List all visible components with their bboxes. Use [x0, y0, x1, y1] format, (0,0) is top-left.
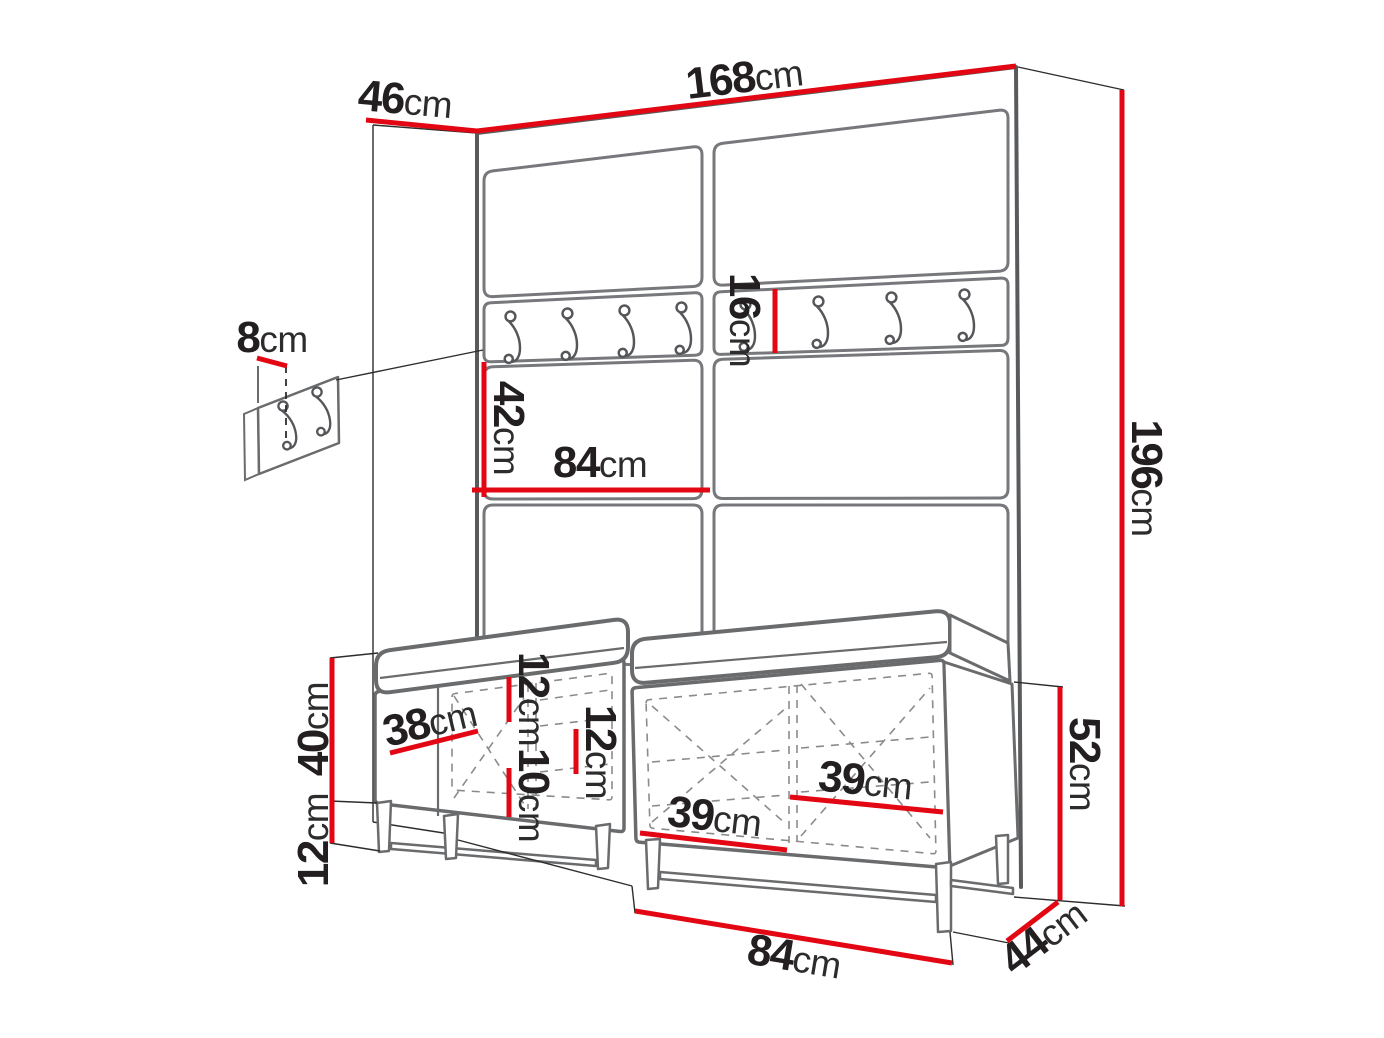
dimension-diagram: 46cm 168cm 196cm 8cm 42cm 84cm 16cm 40cm [0, 0, 1384, 1038]
dim-leg-height: 12cm [289, 793, 338, 887]
mini-hook-panel [244, 350, 483, 480]
svg-text:8cm: 8cm [236, 313, 307, 362]
hook-rail-left [484, 293, 702, 362]
svg-text:52cm: 52cm [1060, 717, 1109, 811]
svg-text:16cm: 16cm [720, 273, 769, 367]
bench-leg [596, 824, 610, 869]
bench-leg [444, 814, 458, 859]
svg-text:42cm: 42cm [484, 381, 533, 475]
mini-panel-board [258, 377, 339, 474]
svg-text:196cm: 196cm [1122, 419, 1171, 536]
svg-text:84cm: 84cm [553, 438, 647, 487]
dim-shelf-gap-bottom: 10cm [509, 748, 558, 842]
dim-shelf-gap-top: 12cm [509, 652, 558, 746]
bench-leg [646, 839, 660, 889]
svg-text:46cm: 46cm [356, 71, 454, 128]
upholstered-pads-right [714, 110, 1008, 681]
pointer-line [336, 350, 483, 380]
svg-text:12cm: 12cm [509, 652, 558, 746]
svg-text:12cm: 12cm [576, 705, 625, 799]
dim-total-depth: 46cm [356, 71, 477, 131]
svg-text:12cm: 12cm [289, 793, 338, 887]
dim-shelf-gap-mid: 12cm [576, 705, 625, 799]
dim-bench-height: 52cm [1014, 682, 1109, 900]
dim-bench-depth: 44cm [953, 888, 1095, 984]
svg-text:168cm: 168cm [683, 46, 805, 109]
svg-text:84cm: 84cm [744, 925, 845, 989]
svg-text:40cm: 40cm [289, 682, 338, 776]
dim-bench-width: 84cm [632, 886, 953, 989]
bench-leg [996, 835, 1008, 884]
bench-leg [377, 801, 391, 852]
furniture-drawing: 46cm 168cm 196cm 8cm 42cm 84cm 16cm 40cm [0, 0, 1384, 1038]
svg-text:10cm: 10cm [509, 748, 558, 842]
bench-leg [936, 862, 951, 932]
